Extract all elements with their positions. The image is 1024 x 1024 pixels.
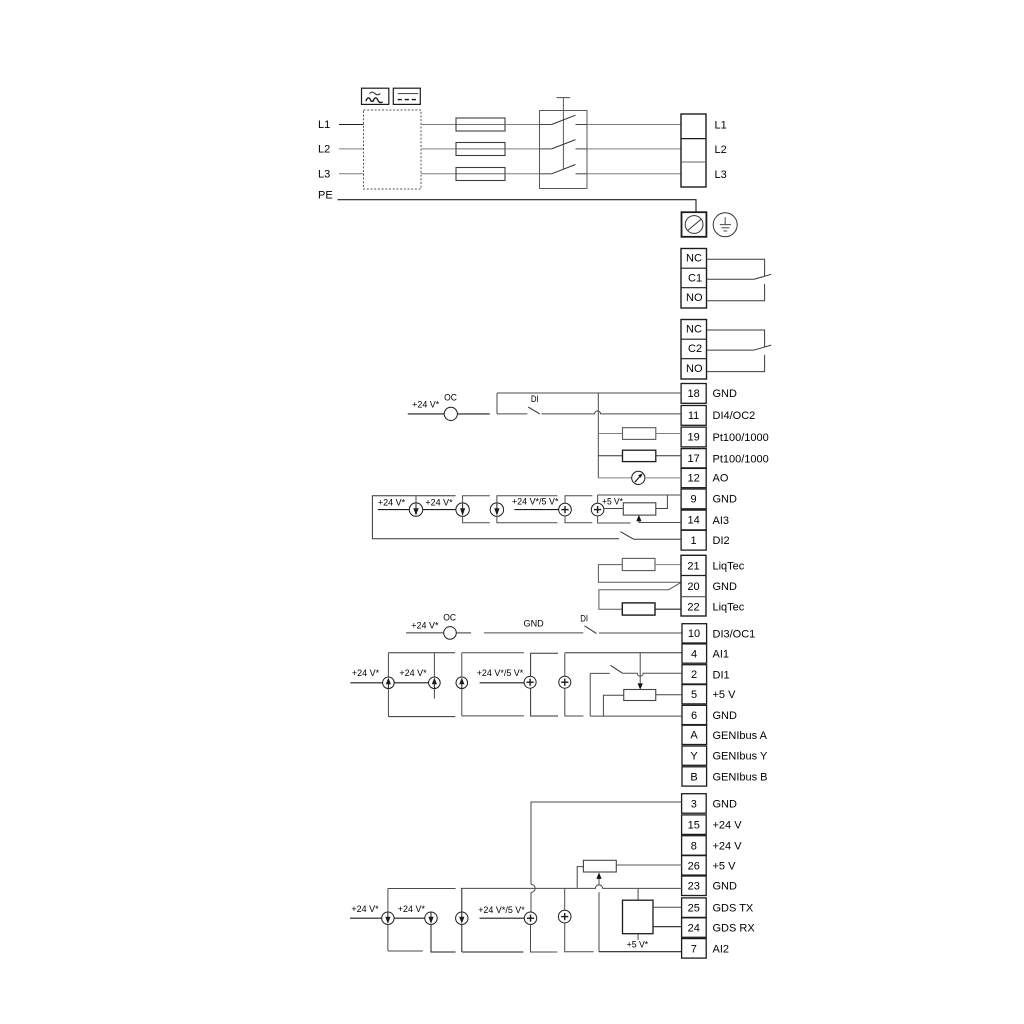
svg-text:DI: DI (531, 394, 539, 404)
svg-text:+5 V*: +5 V* (627, 940, 649, 950)
svg-text:DI3/OC1: DI3/OC1 (713, 628, 756, 640)
svg-text:+24 V*: +24 V* (425, 497, 453, 507)
svg-text:1: 1 (691, 535, 697, 547)
svg-text:GND: GND (713, 388, 738, 400)
svg-text:OC: OC (443, 612, 456, 622)
svg-text:+24 V*/5 V*: +24 V*/5 V* (478, 905, 525, 915)
svg-text:+24 V: +24 V (713, 820, 743, 832)
svg-text:10: 10 (688, 628, 700, 640)
svg-text:8: 8 (691, 840, 697, 852)
svg-text:24: 24 (688, 923, 700, 935)
svg-text:NC: NC (686, 253, 702, 265)
svg-text:AI2: AI2 (713, 943, 730, 955)
svg-text:12: 12 (687, 472, 699, 484)
svg-text:DI: DI (580, 613, 588, 623)
svg-text:NC: NC (686, 324, 702, 336)
svg-text:C2: C2 (688, 343, 702, 355)
svg-text:GDS TX: GDS TX (713, 903, 754, 915)
svg-text:GND: GND (713, 710, 738, 722)
svg-text:GENIbus B: GENIbus B (713, 771, 768, 783)
svg-text:DI2: DI2 (713, 535, 730, 547)
svg-text:26: 26 (688, 860, 700, 872)
svg-text:Pt100/1000: Pt100/1000 (713, 453, 769, 465)
svg-text:+5 V: +5 V (713, 689, 737, 701)
svg-text:+5 V*: +5 V* (602, 496, 623, 506)
svg-text:NO: NO (686, 292, 703, 304)
svg-text:18: 18 (687, 388, 699, 400)
svg-text:NO: NO (686, 363, 703, 375)
svg-text:25: 25 (688, 903, 700, 915)
svg-text:+24 V*: +24 V* (398, 904, 426, 914)
svg-text:LiqTec: LiqTec (713, 560, 745, 572)
svg-text:22: 22 (687, 601, 699, 613)
svg-text:+24 V: +24 V (713, 840, 743, 852)
svg-text:LiqTec: LiqTec (713, 601, 745, 613)
svg-text:GND: GND (713, 581, 738, 593)
svg-text:9: 9 (691, 494, 697, 506)
svg-text:AI1: AI1 (713, 649, 730, 661)
svg-text:GND: GND (713, 881, 738, 893)
svg-text:L1: L1 (715, 120, 727, 132)
svg-text:+24 V*: +24 V* (412, 400, 440, 410)
svg-text:6: 6 (691, 710, 697, 722)
svg-text:B: B (690, 771, 697, 783)
svg-text:15: 15 (688, 820, 700, 832)
svg-text:20: 20 (687, 581, 699, 593)
svg-text:PE: PE (318, 190, 333, 202)
svg-text:Pt100/1000: Pt100/1000 (713, 432, 769, 444)
svg-text:L1: L1 (318, 119, 330, 131)
svg-text:+24 V*/5 V*: +24 V*/5 V* (477, 668, 524, 678)
svg-text:GENIbus A: GENIbus A (713, 730, 768, 742)
svg-text:+24 V*: +24 V* (352, 668, 380, 678)
svg-text:L3: L3 (318, 169, 330, 181)
svg-text:+24 V*: +24 V* (378, 497, 406, 507)
svg-text:L2: L2 (715, 144, 727, 156)
svg-text:5: 5 (691, 689, 697, 701)
svg-text:4: 4 (691, 648, 697, 660)
svg-text:+24 V*: +24 V* (411, 621, 439, 631)
svg-text:L3: L3 (715, 169, 727, 181)
svg-text:14: 14 (687, 515, 699, 527)
svg-text:DI1: DI1 (713, 669, 730, 681)
svg-text:11: 11 (688, 410, 699, 422)
svg-text:2: 2 (691, 669, 697, 681)
svg-text:21: 21 (687, 560, 699, 572)
svg-text:AO: AO (713, 473, 729, 485)
svg-text:17: 17 (687, 453, 699, 465)
svg-text:GND: GND (713, 798, 738, 810)
svg-text:+5 V: +5 V (713, 860, 737, 872)
svg-text:Y: Y (690, 751, 698, 763)
svg-text:GND: GND (713, 494, 738, 506)
svg-text:DI4/OC2: DI4/OC2 (713, 410, 756, 422)
svg-text:C1: C1 (688, 272, 702, 284)
svg-text:AI3: AI3 (713, 515, 730, 527)
svg-text:L2: L2 (318, 144, 330, 156)
svg-text:GENIbus Y: GENIbus Y (713, 751, 768, 763)
svg-text:3: 3 (691, 798, 697, 810)
svg-text:OC: OC (444, 392, 457, 402)
svg-text:A: A (690, 730, 698, 742)
svg-text:GDS RX: GDS RX (713, 923, 756, 935)
svg-text:7: 7 (691, 943, 697, 955)
svg-text:23: 23 (688, 881, 700, 893)
svg-text:GND: GND (524, 619, 545, 629)
svg-text:+24 V*: +24 V* (351, 904, 379, 914)
svg-text:+24 V*: +24 V* (399, 668, 427, 678)
svg-text:19: 19 (687, 432, 699, 444)
svg-text:+24 V*/5 V*: +24 V*/5 V* (512, 497, 559, 507)
